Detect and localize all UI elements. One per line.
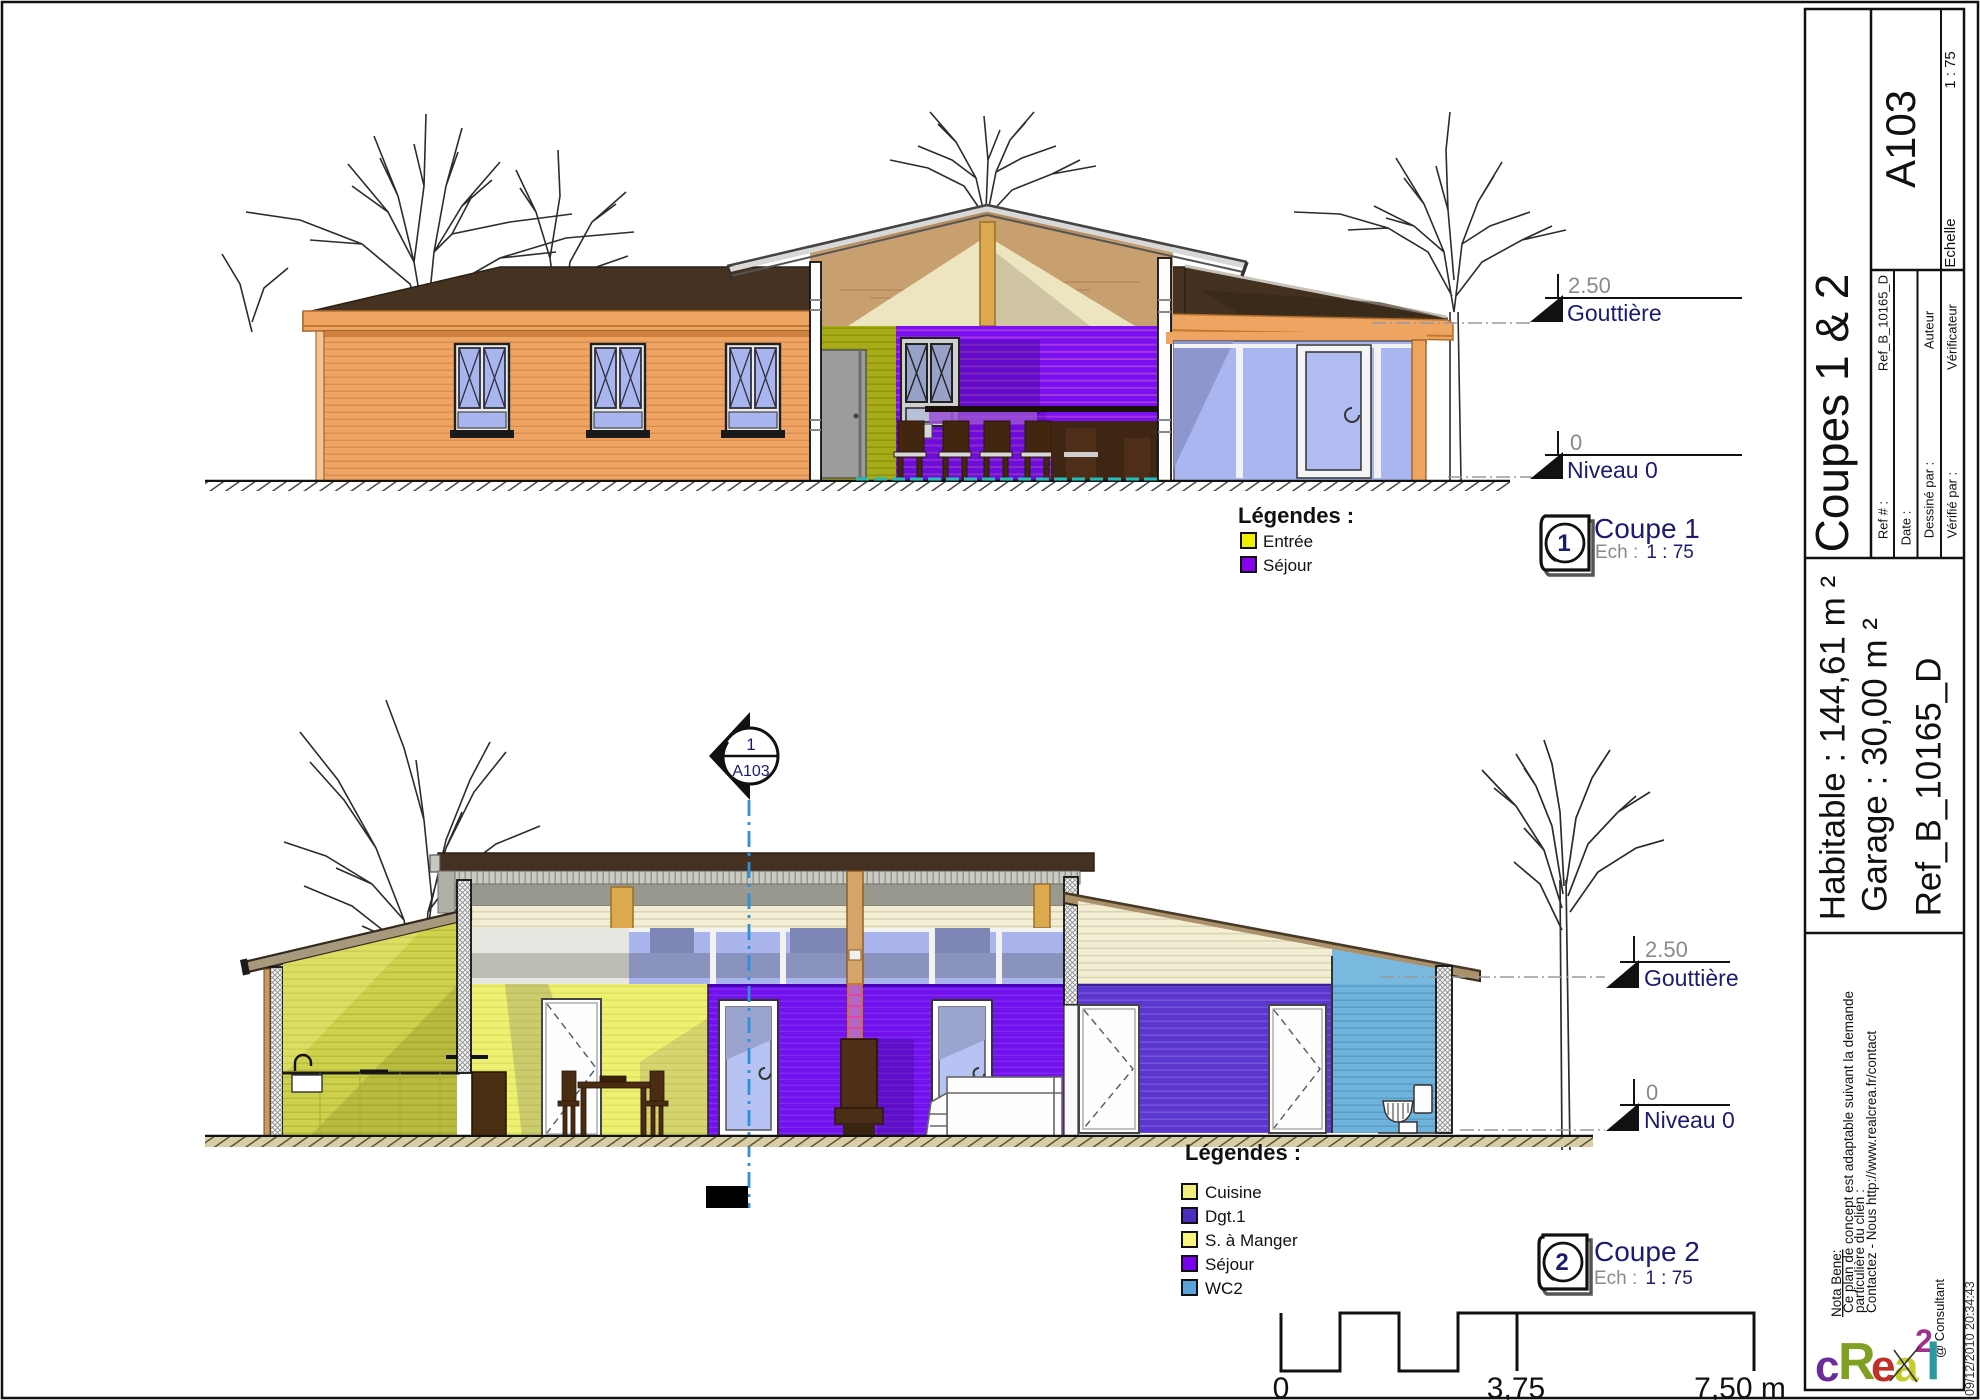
svg-text:R: R xyxy=(1838,1333,1876,1391)
svg-text:09/12/2010 20:34:43: 09/12/2010 20:34:43 xyxy=(1963,1281,1977,1396)
svg-text:2: 2 xyxy=(1555,1249,1568,1276)
svg-text:Auteur: Auteur xyxy=(1921,310,1936,349)
svg-text:Habitable : 144,61 m ²: Habitable : 144,61 m ² xyxy=(1813,576,1852,920)
svg-text:Séjour: Séjour xyxy=(1205,1255,1254,1274)
svg-text:0: 0 xyxy=(1646,1080,1658,1105)
svg-text:l: l xyxy=(1926,1333,1940,1391)
svg-text:0: 0 xyxy=(1273,1372,1290,1400)
svg-text:WC2: WC2 xyxy=(1205,1279,1243,1298)
svg-text:Coupe 1: Coupe 1 xyxy=(1594,513,1700,544)
svg-text:Cuisine: Cuisine xyxy=(1205,1183,1262,1202)
svg-text:A103: A103 xyxy=(732,763,769,780)
svg-text:7,50 m: 7,50 m xyxy=(1694,1372,1786,1400)
svg-text:3,75: 3,75 xyxy=(1487,1372,1545,1400)
svg-text:1: 1 xyxy=(746,735,755,754)
svg-text:Niveau 0: Niveau 0 xyxy=(1644,1107,1735,1133)
svg-text:Ref_B_10165_D: Ref_B_10165_D xyxy=(1875,275,1890,371)
svg-text:Légendes :: Légendes : xyxy=(1185,1140,1301,1165)
svg-text:Dessiné par :: Dessiné par : xyxy=(1921,462,1936,539)
svg-text:Niveau 0: Niveau 0 xyxy=(1567,457,1658,483)
svg-text:Date :: Date : xyxy=(1898,511,1913,546)
svg-text:A103: A103 xyxy=(1877,90,1924,188)
svg-text:0: 0 xyxy=(1570,430,1582,455)
svg-text:Gouttière: Gouttière xyxy=(1644,965,1739,991)
svg-text:Ref # :: Ref # : xyxy=(1875,501,1890,539)
svg-text:S. à Manger: S. à Manger xyxy=(1205,1231,1298,1250)
svg-text:Ref_B_10165_D: Ref_B_10165_D xyxy=(1909,658,1948,917)
svg-text:c: c xyxy=(1815,1342,1839,1391)
svg-text:Dgt.1: Dgt.1 xyxy=(1205,1207,1246,1226)
svg-text:Légendes :: Légendes : xyxy=(1238,503,1354,528)
svg-text:e: e xyxy=(1871,1342,1895,1391)
svg-text:2.50: 2.50 xyxy=(1568,273,1611,298)
svg-text:2.50: 2.50 xyxy=(1645,937,1688,962)
svg-text:Entrée: Entrée xyxy=(1263,532,1313,551)
svg-text:Vérificateur: Vérificateur xyxy=(1944,303,1959,369)
svg-text:1: 1 xyxy=(1557,530,1570,557)
svg-text:Echelle: Echelle xyxy=(1942,218,1959,267)
svg-text:Coupes 1 & 2: Coupes 1 & 2 xyxy=(1806,274,1858,553)
svg-text:Garage : 30,00 m ²: Garage : 30,00 m ² xyxy=(1855,618,1894,912)
svg-text:Contactez - Nous http://www.re: Contactez - Nous http://www.realcrea.fr/… xyxy=(1864,1031,1879,1313)
svg-text:Vérifié par :: Vérifié par : xyxy=(1944,472,1959,538)
svg-text:Gouttière: Gouttière xyxy=(1567,300,1662,326)
svg-text:1 : 75: 1 : 75 xyxy=(1942,51,1959,89)
svg-text:Séjour: Séjour xyxy=(1263,556,1312,575)
svg-text:Coupe 2: Coupe 2 xyxy=(1594,1236,1700,1267)
